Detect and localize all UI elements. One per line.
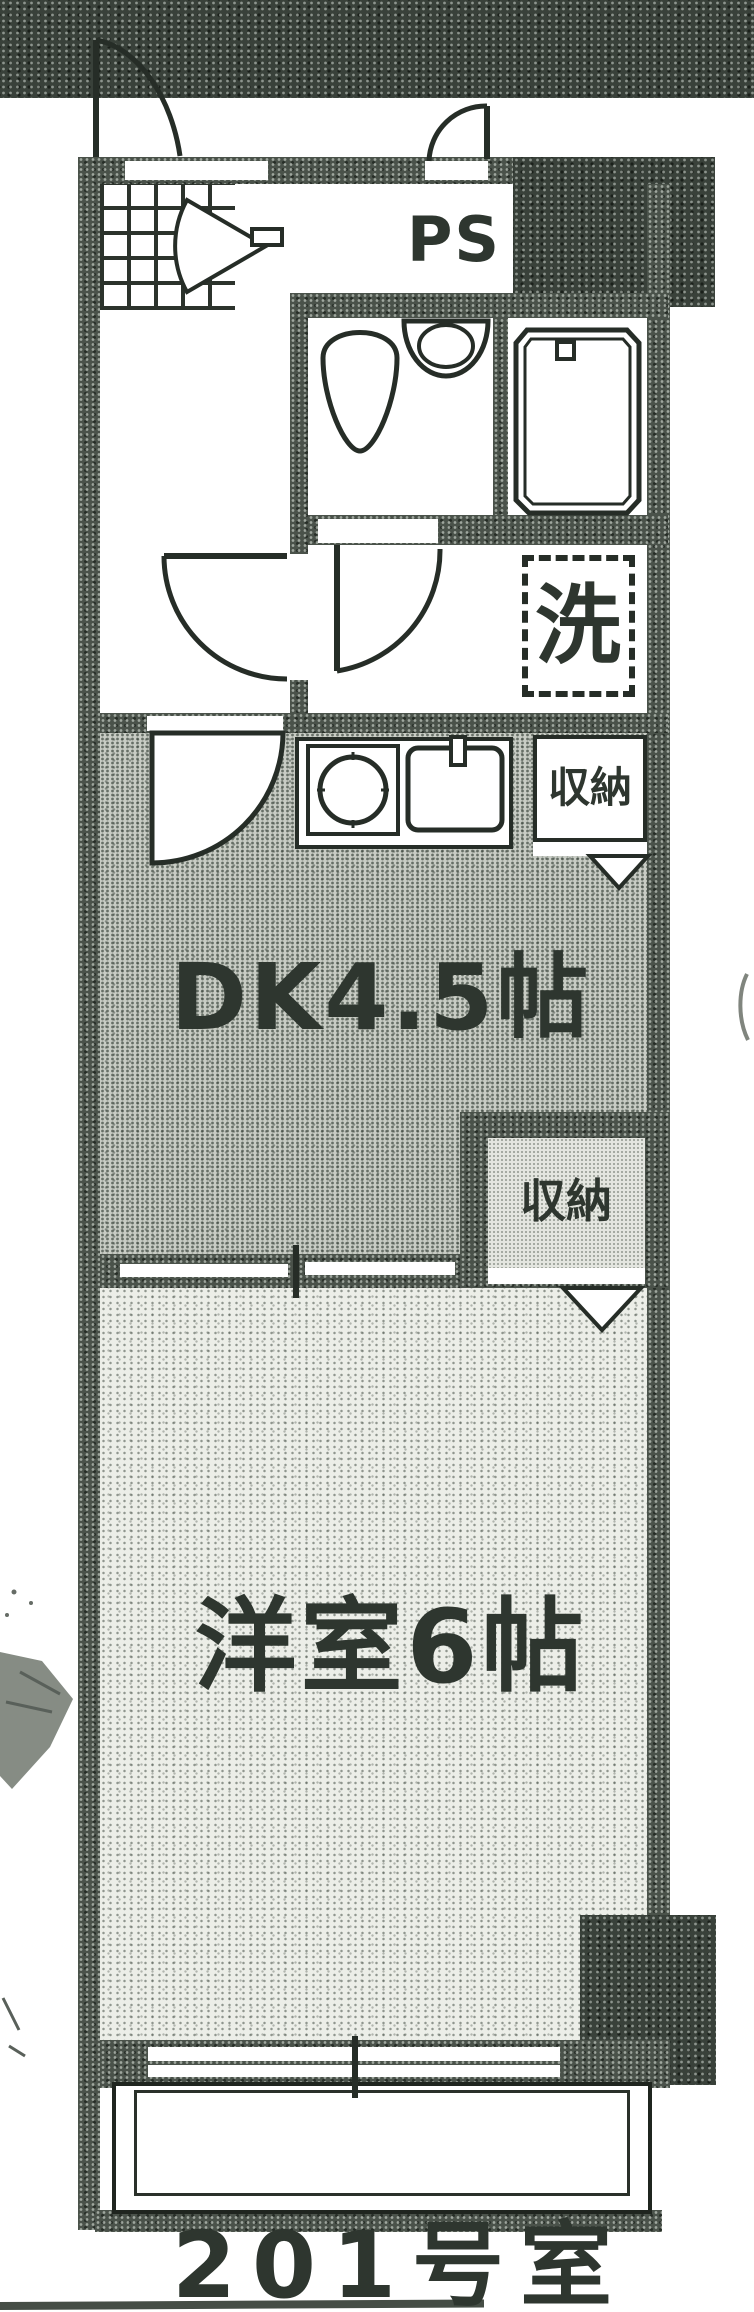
window-pane-upper: [148, 2047, 560, 2061]
bathtub-drain: [557, 342, 574, 359]
toilet-tank-symbol: [404, 321, 488, 376]
toilet-bath-north-wall: [290, 293, 668, 318]
scan-dot-3: [5, 1613, 9, 1617]
entrance-tile-floor: [100, 184, 235, 310]
ps-door-arc: [429, 106, 487, 161]
washroom-door-arc: [164, 556, 287, 679]
toilet-bath-divider-wall: [493, 318, 508, 520]
bathtub-symbol: [516, 330, 639, 513]
ps-door-threshold: [425, 161, 488, 180]
scan-artifact-leaf-veins: [6, 1672, 60, 1712]
scan-artifact-left-marks: [3, 1998, 25, 2056]
toilet-tank-lid: [419, 325, 473, 367]
bedroom-storage-threshold: [488, 1268, 645, 1284]
kitchen-storage-label: 収納: [548, 767, 632, 809]
window-pane-lower: [148, 2065, 560, 2077]
floor-plan-scan: PS 洗 収納 DK4.5帖 収納 洋室6帖 201号室: [0, 0, 754, 2312]
kitchen-storage-threshold: [533, 842, 647, 856]
pipe-space-dark-block: [513, 157, 715, 307]
scan-dot-1: [12, 1590, 17, 1595]
kitchen-counter: [295, 737, 513, 849]
top-corridor-band: [0, 0, 754, 98]
toilet-door-threshold: [318, 519, 438, 543]
scan-artifact-leaf: [0, 1652, 73, 1789]
dk-door-threshold: [147, 716, 283, 731]
scan-artifact-right-squiggle: [740, 974, 748, 1040]
western-room-label: 洋室6帖: [195, 1597, 588, 1699]
dining-kitchen-label: DK4.5帖: [171, 952, 592, 1044]
washroom-door-opening: [290, 554, 308, 680]
sliding-door-panel-right: [305, 1262, 455, 1275]
washing-machine-label: 洗: [535, 583, 621, 669]
bedroom-storage-label: 収納: [520, 1178, 612, 1224]
toilet-symbol: [323, 333, 397, 452]
scan-dot-2: [29, 1601, 33, 1605]
entrance-door-handle: [252, 229, 282, 245]
outer-wall-left: [78, 157, 100, 2230]
entrance-door-threshold: [125, 161, 268, 180]
toilet-door-arc: [337, 549, 440, 671]
bathtub-inner-line: [525, 339, 630, 504]
room-number-label: 201号室: [172, 2220, 628, 2312]
pipe-space-label: PS: [407, 209, 501, 271]
sliding-door-panel-left: [120, 1264, 288, 1277]
balcony-inner-line: [134, 2090, 630, 2196]
